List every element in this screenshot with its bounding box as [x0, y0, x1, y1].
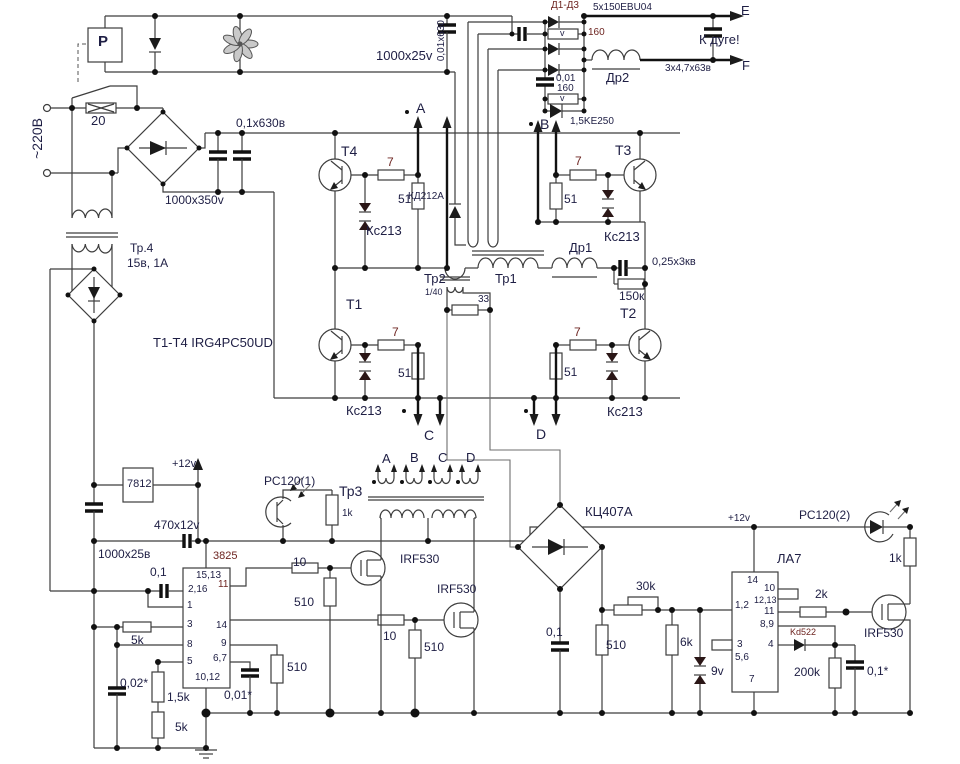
phase-c-label: C	[424, 428, 434, 443]
r33-label: 33	[478, 295, 489, 306]
tr4-primary-coil	[72, 209, 112, 218]
r510-d-label: 510	[606, 639, 626, 652]
la7-label: ЛА7	[777, 552, 801, 566]
r510-a-label: 510	[287, 661, 307, 674]
c01s-label: 0,1*	[867, 665, 888, 678]
mains-label: ~220В	[30, 118, 45, 159]
la7-pin-10: 10	[764, 584, 775, 595]
pin-3: 3	[187, 620, 193, 631]
to-arc-label: К дуге!	[699, 33, 740, 47]
dr1-choke-coil	[552, 258, 597, 268]
phase-d-label: D	[536, 427, 546, 442]
la7-left-stub	[712, 640, 732, 650]
r10-a-label: 10	[293, 556, 306, 569]
tr3-transformer	[368, 464, 484, 541]
tr2-label: Тр2	[424, 272, 446, 286]
schematic-svg	[0, 0, 960, 764]
plus12-1-label: +12v	[172, 459, 196, 471]
pin-1: 1	[187, 601, 193, 612]
ic3825-label: 3825	[213, 551, 237, 563]
la7-pin-3: 3	[737, 640, 743, 651]
kd522-diode-icon	[794, 639, 805, 651]
t3-zener-label: Кс213	[604, 230, 640, 244]
la7-pin-4: 4	[768, 640, 774, 651]
r1k-1-label: 1k	[342, 509, 353, 520]
r510-c-label: 510	[424, 641, 444, 654]
la7-pin-11: 11	[764, 607, 774, 618]
pin-14: 14	[216, 621, 227, 632]
input-snubber-cap-label: 0,1x630в	[236, 117, 285, 130]
d1-d3-type: 5x150EBU04	[593, 3, 652, 14]
c01-2-label: 0,1	[546, 626, 563, 639]
dr2-label: Др2	[606, 71, 629, 85]
kd522-label: Kd522	[790, 628, 816, 637]
t1-re-label: 51	[398, 367, 411, 380]
r6k-label: 6k	[680, 636, 693, 649]
phase-a-label: A	[416, 101, 425, 116]
tr4-label: Тр.4	[130, 242, 153, 255]
t3-label: T3	[615, 143, 631, 158]
relay-label: P	[98, 34, 108, 50]
d1-d3-label: Д1-Д3	[551, 1, 579, 12]
pc120-1-label: РС120(1)	[264, 475, 315, 488]
flyback-diode-icon	[149, 38, 161, 50]
tr4-secondary-coil	[72, 244, 112, 253]
tr1-label: Тр1	[495, 272, 517, 286]
bulk-cap-label: 1000x350v	[165, 194, 224, 207]
igbt-note: T1-T4 IRG4PC50UD	[153, 336, 273, 350]
out-cap-label: 3х4,7х63в	[665, 64, 711, 75]
c001s-label: 0,01*	[224, 689, 252, 702]
t2-label: T2	[620, 306, 636, 321]
t4-label: T4	[341, 144, 357, 159]
r15k-label: 1,5k	[167, 691, 190, 704]
t1-label: T1	[346, 297, 362, 312]
r10-b-label: 10	[383, 630, 396, 643]
res-cap-label: 0,25x3кв	[652, 257, 696, 269]
phase-b-label: В	[540, 117, 549, 132]
r2k-label: 2k	[815, 588, 828, 601]
dr2-choke-coil	[592, 50, 640, 60]
tr3-w-d: D	[466, 451, 475, 465]
schematic-canvas: P 20 ~220В 0,1x630в 1000x350v Тр.4 15в, …	[0, 0, 960, 764]
la7-pin-7: 7	[749, 675, 755, 686]
fan-icon	[222, 16, 258, 72]
term-e-label: E	[741, 4, 750, 18]
mains-terminal-1	[44, 105, 51, 112]
aux-transformer-section	[50, 108, 120, 591]
t2-zener-label: Кс213	[607, 405, 643, 419]
t2-re-label: 51	[564, 366, 577, 379]
irf530-3-icon	[872, 595, 906, 629]
varistor1-label: v	[560, 29, 565, 38]
relay-contact	[72, 86, 110, 98]
pin-6-7: 6,7	[213, 654, 227, 665]
input-rectifier	[127, 112, 680, 398]
tr1-secondary	[449, 22, 545, 255]
pot-30k	[614, 605, 642, 615]
la7-pin-5-6: 5,6	[735, 653, 749, 664]
kd212a-diode-icon	[449, 206, 461, 218]
mains-terminal-2	[44, 170, 51, 177]
r5k-1-label: 5k	[131, 634, 144, 647]
tr3-w-a: A	[382, 452, 391, 466]
c1000-25-label: 1000x25в	[98, 548, 150, 561]
fan-cap-label: 1000x25v	[376, 49, 432, 63]
tvs-diode-icon	[550, 104, 562, 118]
irf530-3-label: IRF530	[864, 627, 903, 640]
relay-link-dashed	[78, 44, 86, 84]
la7-pin-8-9: 8,9	[760, 620, 774, 631]
pin-10-12: 10,12	[195, 673, 220, 684]
pin-9: 9	[221, 639, 227, 650]
kc407a-label: КЦ407А	[585, 505, 633, 519]
plus12-2-label: +12v	[728, 514, 750, 525]
pc120-2-label: РС120(2)	[799, 509, 850, 522]
tr1-primary-coil	[478, 258, 538, 268]
pin-5: 5	[187, 657, 193, 668]
c01-1-label: 0,1	[150, 566, 167, 579]
term-f-label: F	[742, 59, 750, 73]
tr3-label: Тр3	[339, 484, 362, 499]
r200k-label: 200k	[794, 666, 820, 679]
r160-1-label: 160	[588, 28, 605, 39]
tr4-rating: 15в, 1А	[127, 257, 168, 270]
t3-rg-label: 7	[575, 155, 582, 168]
dr1-label: Др1	[569, 241, 592, 255]
la7-right-stub	[778, 589, 798, 599]
r5k-2-label: 5k	[175, 721, 188, 734]
irf530-2-icon	[444, 603, 478, 637]
tvs-label: 1,5KE250	[570, 117, 614, 128]
c002-label: 0,02*	[120, 677, 148, 690]
t2-rg-label: 7	[574, 326, 581, 339]
reg7812-label: 7812	[127, 479, 151, 491]
tr3-w-c: C	[438, 451, 447, 465]
r150k-label: 150к	[619, 290, 644, 303]
tr2-secondary-coil	[447, 287, 463, 293]
pin-11: 11	[218, 580, 228, 591]
la7-pin-1-2: 1,2	[735, 601, 749, 612]
la7-pin-12-13: 12,13	[754, 596, 777, 605]
irf530-1-icon	[351, 551, 385, 585]
t4-zener-label: Кс213	[366, 224, 402, 238]
pc120-1-icon	[266, 497, 291, 527]
hv-cap-label: 0,01x630	[437, 20, 448, 61]
z9v-label: 9v	[711, 665, 724, 678]
r1k-2-label: 1k	[889, 552, 902, 565]
r150k-resistor	[618, 279, 644, 289]
t1-rg-label: 7	[392, 326, 399, 339]
r33-resistor	[452, 305, 478, 315]
r510-b-label: 510	[294, 596, 314, 609]
fuse-value: 20	[91, 114, 105, 128]
la7-pin-14: 14	[747, 576, 758, 587]
t3-re-label: 51	[564, 193, 577, 206]
tr3-w-b: B	[410, 451, 419, 465]
tr2-ratio: 1/40	[425, 288, 443, 297]
varistor2-label: v	[560, 94, 565, 103]
kd212a-label: КД212А	[408, 192, 444, 203]
pin-2-16: 2,16	[188, 585, 207, 596]
t1-zener-label: Кс213	[346, 404, 382, 418]
c470-label: 470x12v	[154, 519, 199, 532]
irf530-2-label: IRF530	[437, 583, 476, 596]
irf530-1-label: IRF530	[400, 553, 439, 566]
pin-8: 8	[187, 640, 193, 651]
t4-rg-label: 7	[387, 156, 394, 169]
r30k-label: 30k	[636, 580, 655, 593]
